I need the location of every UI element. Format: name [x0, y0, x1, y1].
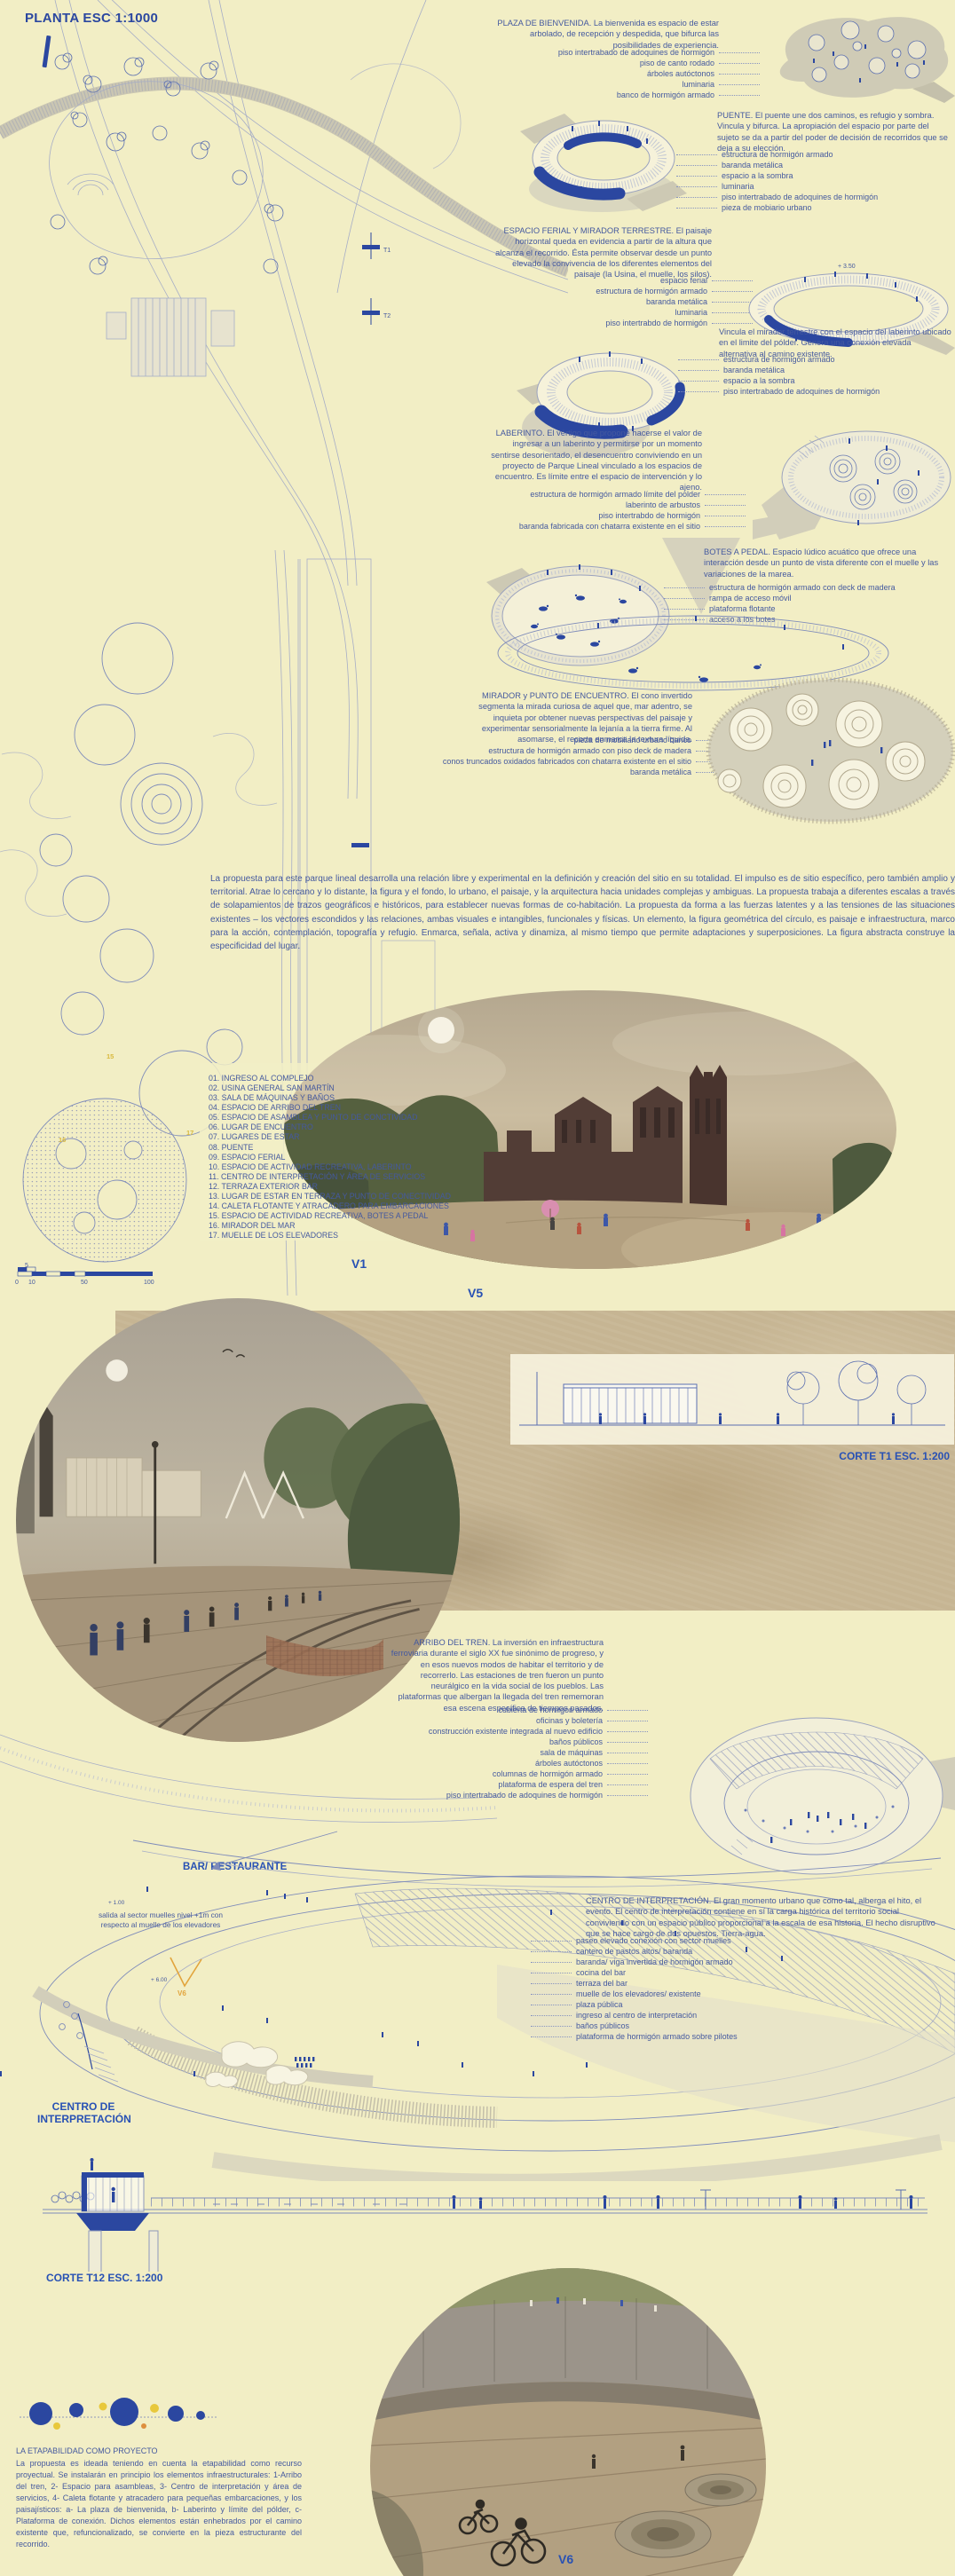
svg-text:100: 100 — [144, 1280, 154, 1285]
label-line: banco de hormigón armado — [462, 90, 760, 100]
label-line: 16. MIRADOR DEL MAR — [209, 1221, 451, 1231]
block-arribo-labels: cubierta de hormigón armadooficinas y bo… — [353, 1705, 648, 1800]
section-marker-t2: T2 — [362, 298, 391, 325]
label-line: árboles autóctonos — [353, 1758, 648, 1769]
corte-t12-drawing — [36, 2153, 950, 2272]
label-line: columnas de hormigón armado — [353, 1769, 648, 1779]
label-line: luminaria — [676, 181, 953, 192]
svg-text:10: 10 — [28, 1280, 36, 1285]
label-line: piso intertrabdo de hormigón — [451, 510, 746, 521]
label-line: construcción existente integrada al nuev… — [353, 1726, 648, 1737]
etapa-diagram — [11, 2375, 227, 2446]
label-line: 17. MUELLE DE LOS ELEVADORES — [209, 1231, 451, 1241]
salida-note: salida al sector muelles nivel +1m con r… — [98, 1910, 224, 1930]
svg-text:T1: T1 — [383, 248, 391, 254]
lamppost — [154, 1446, 156, 1564]
svg-text:T2: T2 — [383, 313, 391, 319]
label-line: espacio ferial — [454, 275, 753, 286]
label-line: conos truncados oxidados fabricados con … — [440, 756, 737, 767]
label-line: árboles autóctonos — [462, 68, 760, 79]
label-line: plataforma de hormigón armado sobre pilo… — [531, 2031, 918, 2042]
label-line: 05. ESPACIO DE ASAMBLEA Y PUNTO DE CONCT… — [209, 1113, 451, 1123]
scale-bar: 5 0 10 50 100 — [11, 1260, 162, 1285]
label-line: baranda metálica — [678, 365, 955, 375]
label-line: plaza pública — [531, 1999, 918, 2010]
label-line: baños públicos — [353, 1737, 648, 1747]
corte-t12-label: CORTE T12 ESC. 1:200 — [46, 2272, 162, 2284]
centro-interpretacion-label: CENTRO DE INTERPRETACIÓN — [37, 2101, 130, 2126]
label-line: baranda fabricada con chatarra existente… — [451, 521, 746, 532]
label-line: muelle de los elevadores/ existente — [531, 1989, 918, 1999]
moon — [428, 1017, 454, 1044]
corte-t1-drawing — [510, 1354, 954, 1445]
label-line: 02. USINA GENERAL SAN MARTÍN — [209, 1083, 451, 1093]
label-line: 08. PUENTE — [209, 1143, 451, 1153]
view-label-v5: V5 — [468, 1286, 483, 1300]
plan-marker-15: 15 — [107, 1052, 114, 1060]
label-line: estructura de hormigón armado con deck d… — [664, 582, 950, 593]
etapa-title: LA ETAPABILIDAD COMO PROYECTO — [16, 2446, 302, 2457]
block-arribo-text: ARRIBO DEL TREN. La inversión en infraes… — [387, 1637, 604, 1713]
block-mirador-labels: pieza de mobiliario urbano bancoestructu… — [440, 735, 737, 777]
plan-marker-17: 17 — [186, 1129, 193, 1137]
centro-label-line2: INTERPRETACIÓN — [37, 2114, 130, 2126]
view-marker-v6-axon: V6 — [178, 1989, 186, 1997]
label-line: baranda metálica — [676, 160, 953, 170]
label-line: cubierta de hormigón armado — [353, 1705, 648, 1715]
presentation-board: T1 T2 PLANTA ESC 1:1000 15 16 17 PLAZA D… — [0, 0, 955, 2576]
label-line: paseo elevado conexión con sector muelle… — [531, 1935, 918, 1946]
plan-marker-16: 16 — [59, 1136, 66, 1144]
label-line: baranda metálica — [440, 767, 737, 777]
block-vincula-labels: estructura de hormigón armadobaranda met… — [678, 354, 955, 397]
block-centro-labels: paseo elevado conexión con sector muelle… — [531, 1935, 918, 2042]
label-line: estructura de hormigón armado — [676, 149, 953, 160]
label-line: espacio a la sombra — [676, 170, 953, 181]
label-line: rampa de acceso móvil — [664, 593, 950, 603]
svg-text:0: 0 — [15, 1280, 19, 1285]
svg-text:50: 50 — [81, 1280, 88, 1285]
label-line: luminaria — [462, 79, 760, 90]
etapa-text: La propuesta es ideada teniendo en cuent… — [16, 2458, 302, 2550]
label-line: pieza de mobiliario urbano banco — [440, 735, 737, 745]
label-line: pieza de mobiario urbano — [676, 202, 953, 213]
block-ferial-labels: espacio ferialestructura de hormigón arm… — [454, 275, 753, 328]
label-line: 01. INGRESO AL COMPLEJO — [209, 1074, 451, 1083]
label-line: 10. ESPACIO DE ACTIVIDAD RECREATIVA, LAB… — [209, 1162, 451, 1172]
label-line: baños públicos — [531, 2021, 918, 2031]
block-ferial-text: ESPACIO FERIAL Y MIRADOR TERRESTRE. El p… — [493, 225, 712, 280]
label-line: piso intertrabado de adoquines de hormig… — [676, 192, 953, 202]
label-line: sala de máquinas — [353, 1747, 648, 1758]
svg-text:+ 3.50: + 3.50 — [838, 264, 856, 270]
block-botes-text: BOTES A PEDAL. Espacio lúdico acuático q… — [704, 547, 951, 579]
block-plaza-text: PLAZA DE BIENVENIDA. La bienvenida es es… — [495, 18, 719, 51]
label-line: estructura de hormigón armado con piso d… — [440, 745, 737, 756]
label-line: estructura de hormigón armado — [454, 286, 753, 296]
label-line: piso intertrabado de adoquines de hormig… — [678, 386, 955, 397]
label-line: piso de canto rodado — [462, 58, 760, 68]
label-line: piso intertrabdo de hormigón — [454, 318, 753, 328]
label-line: 09. ESPACIO FERIAL — [209, 1153, 451, 1162]
puente-diagram — [513, 103, 696, 220]
block-plaza-labels: piso intertrabado de adoquines de hormig… — [462, 47, 760, 100]
figure-cluster — [295, 2057, 314, 2068]
block-laberinto-labels: estructura de hormigón armado límite del… — [451, 489, 746, 532]
label-line: estructura de hormigón armado límite del… — [451, 489, 746, 500]
label-line: plataforma de espera del tren — [353, 1779, 648, 1790]
label-line: 07. LUGARES DE ESTAR — [209, 1132, 451, 1142]
block-laberinto-text: LABERINTO. El vértigo que propone hacers… — [482, 428, 702, 493]
label-line: 12. TERRAZA EXTERIOR BAR — [209, 1182, 451, 1192]
label-line: piso intertrabado de adoquines de hormig… — [462, 47, 760, 58]
view-label-v6: V6 — [558, 2552, 573, 2566]
label-line: baranda metálica — [454, 296, 753, 307]
section-marker-t1: T1 — [362, 232, 391, 259]
laberinto-diagram — [753, 421, 955, 540]
north-tick — [43, 35, 51, 67]
v6-camera-marker — [165, 1954, 208, 1991]
label-line: 04. ESPACIO DE ARRIBO DEL TREN — [209, 1103, 451, 1113]
label-line: espacio a la sombra — [678, 375, 955, 386]
mirador-diagram — [698, 674, 955, 829]
photo-waterfront-render — [370, 2268, 766, 2576]
label-line: piso intertrabado de adoquines de hormig… — [353, 1790, 648, 1800]
centro-label-line1: CENTRO DE — [37, 2101, 130, 2114]
view-label-v1: V1 — [351, 1256, 367, 1271]
label-line: baranda/ viga invertida de hormigón arma… — [531, 1957, 918, 1967]
label-line: 06. LUGAR DE ENCUENTRO — [209, 1123, 451, 1132]
label-line: estructura de hormigón armado — [678, 354, 955, 365]
label-line: 11. CENTRO DE INTERPRETACIÓN Y ÁREA DE S… — [209, 1172, 451, 1182]
label-line: 15. ESPACIO DE ACTIVIDAD RECREATIVA, BOT… — [209, 1211, 451, 1221]
moon — [106, 1359, 128, 1382]
label-line: oficinas y boletería — [353, 1715, 648, 1726]
elev-mark-1: + 1.00 — [108, 1900, 124, 1906]
legend-list: 01. INGRESO AL COMPLEJO02. USINA GENERAL… — [209, 1074, 451, 1241]
block-puente-text: PUENTE. El puente une dos caminos, es re… — [717, 110, 951, 154]
corte-t1-label: CORTE T1 ESC. 1:200 — [763, 1450, 950, 1462]
label-line: luminaria — [454, 307, 753, 318]
block-puente-labels: estructura de hormigón armadobaranda met… — [676, 149, 953, 213]
tower-silhouette — [40, 1406, 53, 1516]
label-line: cocina del bar — [531, 1967, 918, 1978]
plan-title: PLANTA ESC 1:1000 — [25, 11, 158, 26]
label-line: ingreso al centro de interpretación — [531, 2010, 918, 2021]
label-line: terraza del bar — [531, 1978, 918, 1989]
plaza-diagram — [735, 7, 955, 106]
label-line: 03. SALA DE MÁQUINAS Y BAÑOS — [209, 1093, 451, 1103]
label-line: cantero de pastos altos/ baranda — [531, 1946, 918, 1957]
label-line: laberinto de arbustos — [451, 500, 746, 510]
label-line: 13. LUGAR DE ESTAR EN TERRAZA Y PUNTO DE… — [209, 1192, 451, 1201]
label-line: 14. CALETA FLOTANTE Y ATRACADERO PARA EM… — [209, 1201, 451, 1211]
intro-paragraph: La propuesta para este parque lineal des… — [210, 872, 955, 953]
block-centro-text: CENTRO DE INTERPRETACIÓN. El gran moment… — [586, 1895, 939, 1939]
